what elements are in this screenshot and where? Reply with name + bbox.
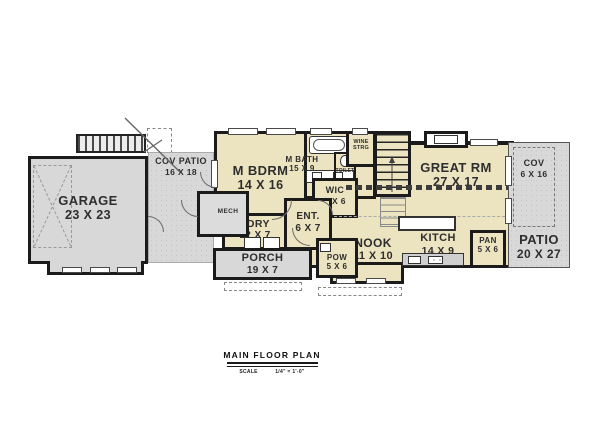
scale-value: 1/4" = 1'-0": [275, 369, 304, 375]
break-line: [125, 118, 180, 172]
plan-scale: SCALE 1/4" = 1'-0": [212, 370, 332, 376]
break-tick: [144, 140, 162, 152]
plan-title-text: MAIN FLOOR PLAN: [212, 350, 332, 360]
plan-title: MAIN FLOOR PLAN: [212, 350, 332, 360]
scale-label: SCALE: [239, 369, 257, 375]
title-rule-thick: [227, 362, 318, 364]
floor-plan-canvas: GARAGE 23 X 23 COV PATIO 16 X 18 M BDRM …: [0, 0, 600, 423]
title-rule-thin: [227, 366, 318, 367]
stair-direction-arrow: [389, 156, 395, 163]
